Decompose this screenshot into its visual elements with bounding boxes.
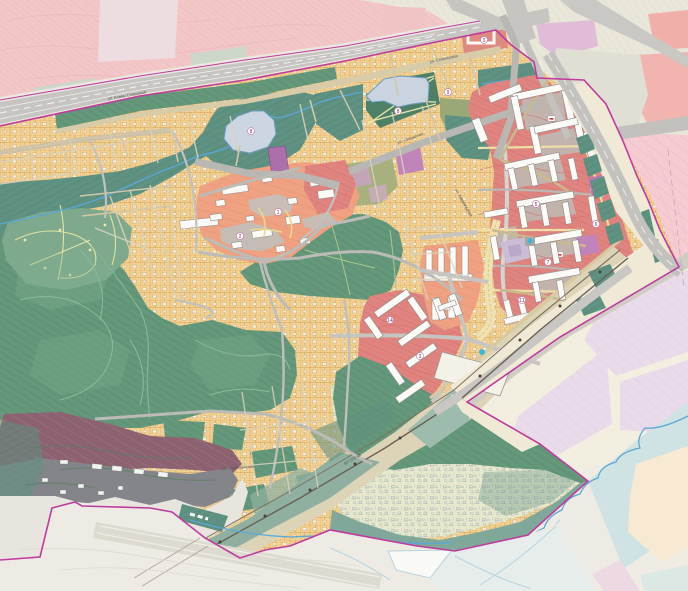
svg-text:8: 8	[397, 109, 400, 115]
svg-text:2: 2	[239, 234, 242, 240]
svg-text:14: 14	[387, 318, 393, 324]
svg-text:3: 3	[483, 38, 486, 44]
svg-text:3: 3	[419, 354, 422, 360]
svg-text:5: 5	[535, 202, 538, 208]
svg-text:1: 1	[277, 210, 280, 216]
svg-text:6: 6	[595, 222, 598, 228]
svg-text:9: 9	[447, 90, 450, 96]
svg-text:8: 8	[250, 129, 253, 135]
svg-text:7: 7	[547, 260, 550, 266]
svg-text:11: 11	[519, 298, 524, 304]
